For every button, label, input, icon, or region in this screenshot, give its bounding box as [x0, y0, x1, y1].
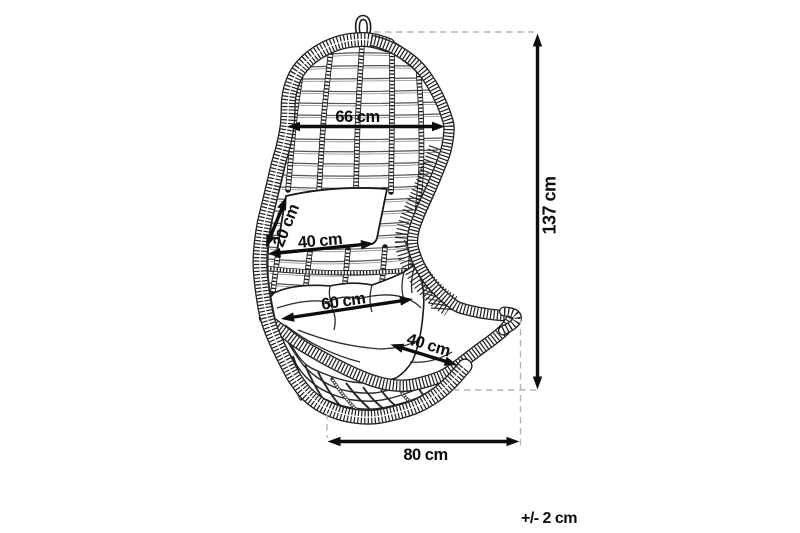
svg-text:66 cm: 66 cm	[335, 108, 379, 126]
svg-text:40 cm: 40 cm	[297, 230, 343, 252]
svg-text:+/- 2 cm: +/- 2 cm	[521, 510, 577, 527]
svg-text:80 cm: 80 cm	[403, 446, 447, 464]
svg-text:137 cm: 137 cm	[540, 176, 560, 234]
